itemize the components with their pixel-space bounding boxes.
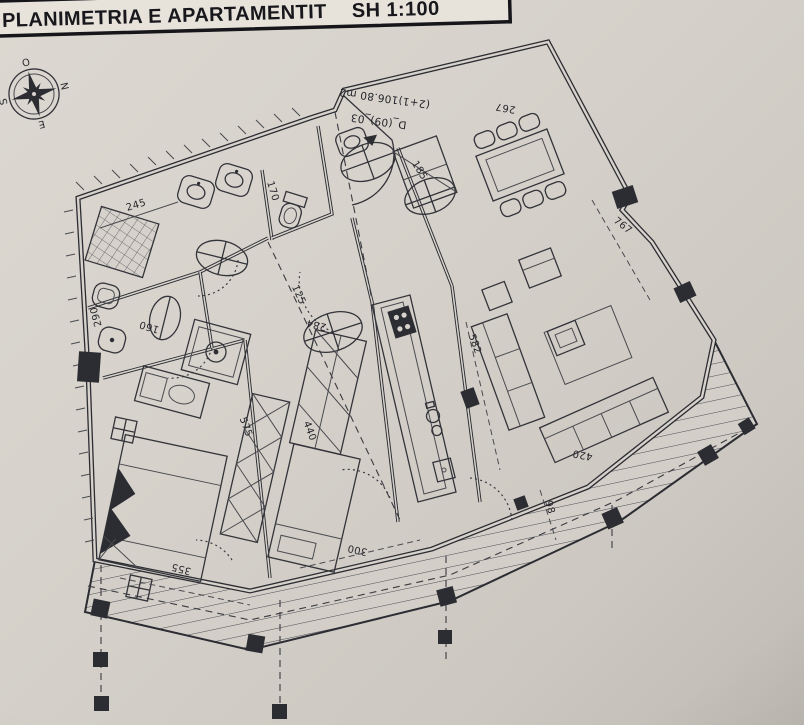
sink-icon <box>176 174 217 211</box>
cabinet-icon <box>85 206 159 277</box>
dim-290: 290 <box>89 305 105 327</box>
bed-1-icon <box>99 435 227 582</box>
sofa-2-icon <box>471 314 544 430</box>
dim-575: 575 <box>237 416 254 439</box>
compass-letter-bottom: E <box>37 117 46 129</box>
wardrobe-hatched-icon <box>220 394 289 543</box>
dim-267: 267 <box>495 100 517 114</box>
wall-column <box>77 351 101 382</box>
scanned-floor-plan-page: PLANIMETRIA E APARTAMENTIT SH 1:100 O N … <box>0 0 804 725</box>
dim-420: 420 <box>572 447 594 461</box>
compass-letter-right: N <box>57 81 70 91</box>
dim-582: 582 <box>466 333 483 356</box>
armchair-icon <box>519 248 561 288</box>
shower-icon <box>181 319 250 384</box>
stove-icon <box>387 305 416 338</box>
apartment-label: (2+1)106.80 m2 D_(09)_03 <box>338 86 430 148</box>
coffee-table-icon <box>547 320 585 355</box>
compass-letter-top: O <box>21 57 32 70</box>
dim-125: 125 <box>289 283 308 306</box>
side-table-icon <box>482 281 512 310</box>
wardrobe-icon <box>290 330 367 455</box>
dim-300: 300 <box>346 542 368 557</box>
dining-table-icon <box>469 110 571 219</box>
apartment-area-label: (2+1)106.80 m2 <box>338 86 430 111</box>
dimension-labels: 245 170 125 284 290 160 575 440 185 267 … <box>89 100 634 576</box>
bidet-icon <box>96 325 127 355</box>
rug <box>544 306 632 385</box>
title-band: PLANIMETRIA E APARTAMENTIT SH 1:100 <box>0 0 510 36</box>
compass-rose-icon: O N E S <box>0 49 78 137</box>
floor-plan-drawing: PLANIMETRIA E APARTAMENTIT SH 1:100 O N … <box>0 0 804 725</box>
compass-letter-left: S <box>0 97 11 106</box>
scale-label: SH 1:100 <box>352 0 440 22</box>
kitchen-sink-icon <box>423 401 444 437</box>
tv-icon <box>460 387 479 409</box>
bed-2-icon <box>268 444 360 572</box>
interior-walls <box>88 126 480 578</box>
dim-245: 245 <box>125 197 148 213</box>
sink-icon <box>214 162 255 199</box>
dim-284: 284 <box>305 317 327 332</box>
wall-column <box>612 185 638 209</box>
